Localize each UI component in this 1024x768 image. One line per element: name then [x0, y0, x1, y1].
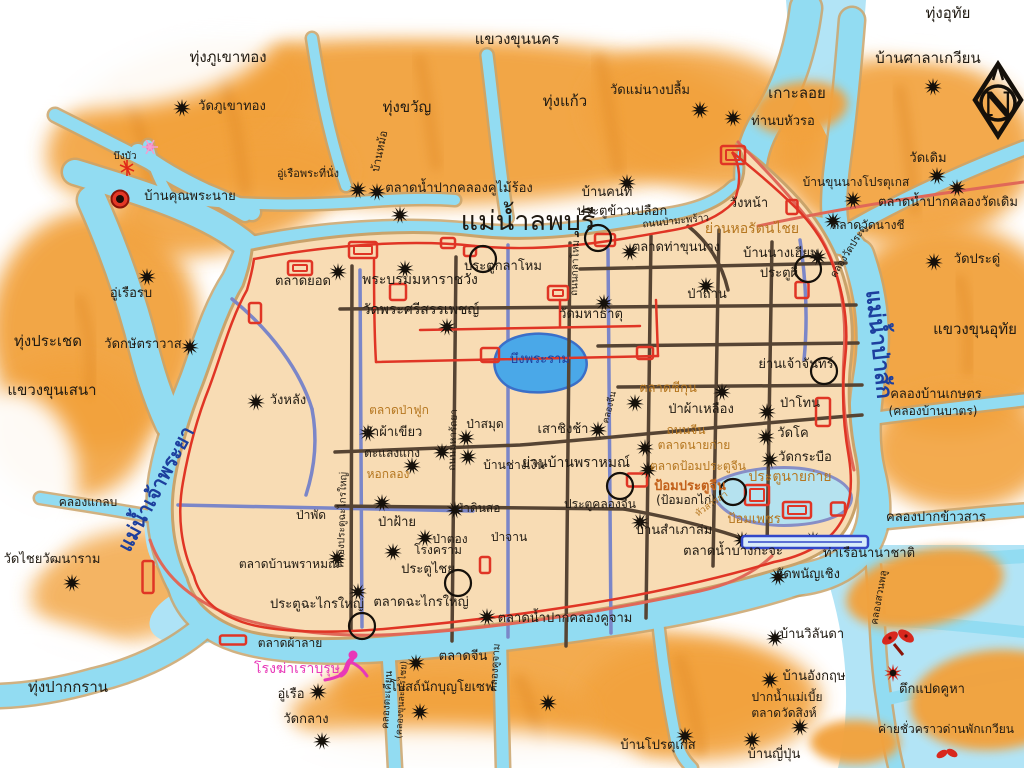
map-label: แขวงขุนนคร: [475, 30, 560, 49]
map-label: โรงคราม: [414, 543, 462, 557]
map-label: (คลองบ้านบาตร): [889, 404, 978, 418]
map-label: หอกลอง: [367, 467, 410, 481]
map-label: ตึกแปดคูหา: [899, 682, 965, 697]
map-label: ตลาดน้ำปากคลองวัดเดิม: [878, 192, 1018, 210]
map-label: ประตูนายก่าย: [748, 469, 831, 485]
map-label: ทุ่งภูเขาทอง: [189, 48, 266, 67]
map-label: ตลาดชีกุน: [639, 380, 697, 396]
map-label: ตะแลงแกง: [364, 446, 420, 460]
map-label: ตลาดป่าฟูก: [369, 403, 429, 418]
map-label: ประตูไชย: [401, 561, 455, 577]
map-label: ตลาดน้ำปากคลองคูไม้ร้อง: [385, 178, 533, 196]
map-label: ป่าพัด: [296, 508, 326, 522]
map-label: บ้านญี่ปุ่น: [748, 745, 801, 762]
map-label: วัดพนัญเชิง: [776, 567, 840, 582]
village-dot-icon: [112, 191, 129, 208]
map-label: ตลาดน้ำปากคลองคูจาม: [498, 608, 633, 626]
map-label: ย่านบ้านพราหมณ์: [522, 454, 630, 471]
map-label: วัดมหาธาตุ: [559, 307, 623, 322]
map-label: ทุ่งปากกราน: [28, 678, 108, 697]
map-label: บ้านสำเภาล่ม: [636, 523, 713, 538]
map-label: บึงบัว: [113, 150, 136, 162]
map-label: พระบรมมหาราชวัง: [362, 272, 478, 288]
map-label: ตลาดน้ำบางกะจะ: [683, 541, 783, 559]
map-label: เกาะลอย: [768, 84, 826, 102]
map-label: วัดกลาง: [283, 712, 328, 727]
map-label: ป่าถ่าน: [687, 287, 727, 302]
map-label: บ้านอังกฤษ: [783, 669, 846, 684]
map-label: ป่าโทน: [780, 395, 820, 411]
map-label: ป่าดินสอ: [456, 501, 501, 515]
map-label: วัดภูเขาทอง: [198, 99, 266, 114]
map-label: แม่น้ำลพบุรี: [461, 201, 596, 238]
map-label: วัดกระบือ: [778, 449, 832, 465]
map-label: บ้านขุนนางโปรตุเกส: [803, 175, 910, 190]
map-label: บ้านคุณพระนาย: [144, 189, 236, 204]
map-label: ทุ่งแก้ว: [543, 92, 587, 111]
map-label: วังหลัง: [270, 393, 307, 408]
map-label: วังหน้า: [730, 196, 768, 211]
map-label: ป้อมประตูจีน: [654, 478, 726, 494]
compass-letter: N: [982, 85, 1013, 125]
map-label: คลองบ้านเกษตร: [890, 387, 982, 402]
map-label: วัดพระศรีสรรเพชญ์: [363, 301, 480, 318]
map-label: ย่านหอรัตนไชย: [705, 220, 799, 237]
map-label: ค่ายชั่วคราวด่านพักเกวียน: [878, 720, 1014, 736]
map-label: วัดไชยวัฒนาราม: [4, 551, 101, 567]
map-label: ป่าจาน: [491, 530, 527, 544]
ayutthaya-historical-map: Nทุ่งอุทัยบ้านศาลาเกวียนแขวงขุนนครทุ่งภู…: [0, 0, 1024, 768]
map-label: ทุ่งขวัญ: [383, 98, 432, 117]
map-label: ตลาดนายก่าย: [658, 438, 731, 452]
map-label: ถนนจีน: [667, 423, 706, 437]
map-label: ท่าเรือนานาชาติ: [823, 545, 915, 561]
map-label: วัดแม่นางปลื้ม: [610, 80, 690, 98]
map-label: บ้านศาลาเกวียน: [875, 49, 980, 67]
map-label: ประตูข้าวเปลือก: [577, 203, 668, 219]
map-label: ย่านเจ้าจันทร์: [758, 356, 833, 372]
map-label: ประตูฉะไกรใหญ่: [270, 596, 364, 612]
map-label: โบสถ์นักบุญโยเซฟ: [390, 679, 494, 695]
map-label: ถนนมหารัถยา: [447, 409, 460, 471]
map-label: ปากน้ำแม่เบี้ย: [752, 688, 823, 704]
map-label: บ้านโปรตุเกส: [620, 737, 695, 753]
map-label: วัดประดู่: [954, 252, 1000, 267]
map-label: ป่าสมุด: [466, 417, 503, 432]
map-label: อู่เรือพระที่นั่ง: [277, 165, 339, 180]
map-label: ป่าผ้าเหลือง: [668, 401, 734, 417]
map-label: ทุ่งอุทัย: [926, 4, 971, 23]
map-label: คลองแกลบ: [59, 495, 117, 509]
map-label: ตลาดยอด: [275, 274, 331, 289]
map-label: บ้านวิลันดา: [780, 627, 844, 642]
map-label: ตลาดบ้านพราหมณ์: [239, 557, 339, 571]
map-label: ป้อมเพชร: [727, 512, 780, 527]
map-label: ประตูผี: [760, 265, 798, 281]
map-label: วัดโค: [777, 425, 808, 441]
map-label: อู่เรือรบ: [110, 285, 152, 301]
map-label: เสาชิงช้า: [538, 422, 589, 437]
map-label: ตลาดวัดสิงห์: [751, 706, 816, 720]
map-label: ตลาดป้อมประตูจีน: [650, 459, 746, 474]
map-label: บึงพระราม: [510, 352, 570, 367]
map-label: วัดกษัตราวาส: [104, 337, 182, 352]
map-label: ท่านบหัวรอ: [751, 114, 815, 129]
map-label: ตลาดฉะไกรใหญ่: [373, 594, 468, 610]
map-label: แขวงขุนเสนา: [7, 381, 96, 400]
map-label: ทุ่งประเชด: [14, 332, 82, 351]
map-label: ป่าผ้าเขียว: [364, 424, 423, 440]
map-label: อู่เรือ: [277, 686, 304, 702]
map-label: ตลาดท่าขุนนาง: [632, 240, 720, 255]
map-label: ตลาดจีน: [439, 648, 488, 664]
map-label: บ้านคนที: [582, 184, 633, 200]
map-label: โรงฆ่าเราบุรุษ: [254, 660, 340, 677]
map-stage: Nทุ่งอุทัยบ้านศาลาเกวียนแขวงขุนนครทุ่งภู…: [0, 0, 1024, 768]
map-label: ป่าฝ้าย: [378, 515, 416, 530]
map-label: คลองปากข้าวสาร: [886, 510, 986, 525]
map-label: ประตูคลองจีน: [564, 497, 636, 512]
map-label: บ้านนางเฮียน: [743, 245, 819, 261]
map-label: ตลาดผ้าลาย: [258, 636, 323, 650]
map-label: วัดเดิม: [909, 151, 946, 166]
map-label: ประตูกลาโหม: [464, 258, 542, 274]
map-label: แขวงขุนอุทัย: [933, 320, 1017, 339]
